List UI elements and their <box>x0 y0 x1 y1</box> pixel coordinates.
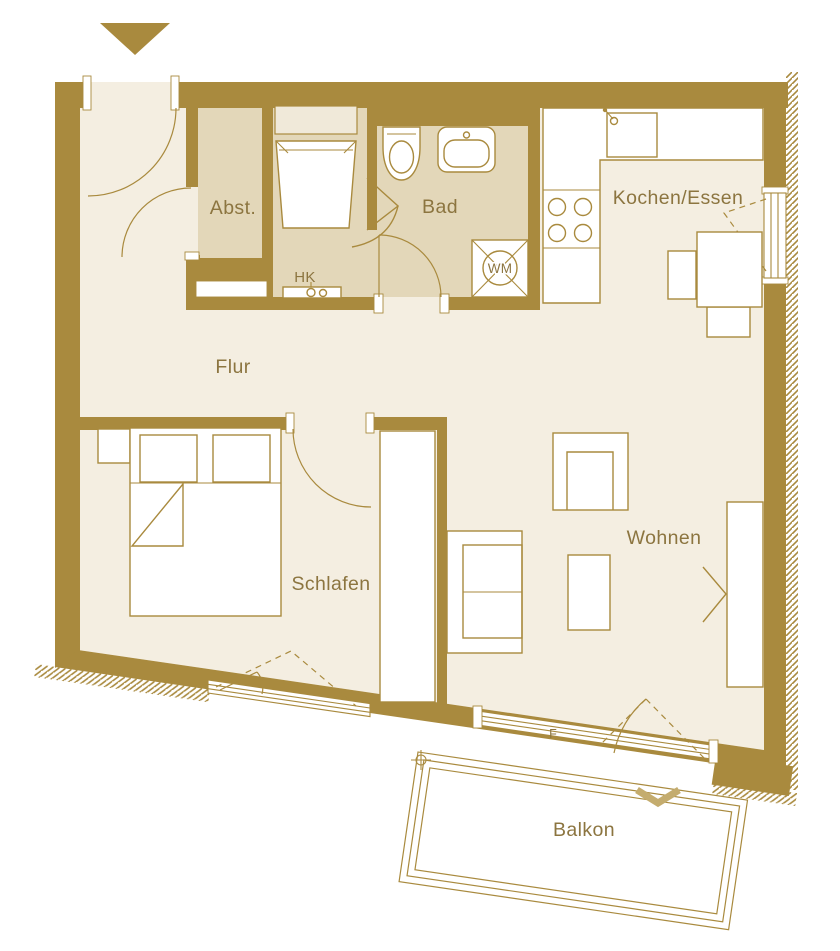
entrance-arrow-icon <box>100 23 170 55</box>
chair-icon <box>707 307 750 337</box>
entrance-threshold <box>90 82 176 108</box>
wall-vestibule-abst-upper <box>186 108 198 187</box>
label-fixed-glazing: F <box>549 727 557 741</box>
floorplan-canvas: Abst. Bad Kochen/Essen Flur Schlafen Woh… <box>0 0 840 951</box>
balcony-strip-jamb-left <box>473 706 482 728</box>
room-label-kochen-essen: Kochen/Essen <box>613 187 744 209</box>
wall-left <box>55 108 80 668</box>
kitchen-window-glazing <box>764 193 786 278</box>
armchair-icon <box>553 433 628 510</box>
wall-bad-kitchen <box>528 108 540 297</box>
room-label-flur: Flur <box>215 356 250 378</box>
duct-niche <box>196 281 267 297</box>
nightstand-icon <box>98 429 130 463</box>
floorplan-drawing: Abst. Bad Kochen/Essen Flur Schlafen Woh… <box>0 0 840 951</box>
hatch-right <box>786 72 798 790</box>
room-label-schlafen: Schlafen <box>291 573 370 595</box>
schlafen-door-jamb-right <box>366 413 374 433</box>
bad-door-opening <box>383 297 440 310</box>
wardrobe-icon <box>380 431 435 702</box>
wall-flur-schlafen-right <box>373 417 447 430</box>
chair-icon <box>668 251 696 299</box>
kitchen-window <box>762 187 788 284</box>
sideboard-icon <box>447 531 522 653</box>
wall-shower-bad <box>367 108 377 230</box>
entrance-door-jamb-right <box>171 76 179 110</box>
label-radiator: HK <box>294 269 315 286</box>
toilet-icon <box>383 127 420 180</box>
wall-abst-bottom <box>198 258 263 282</box>
wall-abst-shower <box>262 108 273 297</box>
room-label-balkon: Balkon <box>553 819 615 841</box>
sink-icon <box>438 127 495 172</box>
room-label-wohnen: Wohnen <box>627 527 702 549</box>
room-label-abst: Abst. <box>210 197 256 219</box>
sofa-icon <box>727 502 763 687</box>
coffee-table-icon <box>568 555 610 630</box>
wall-bad-installation <box>367 108 540 126</box>
dining-table-icon <box>697 232 762 307</box>
wall-top <box>176 82 788 108</box>
bed-icon <box>130 428 281 616</box>
wall-right <box>764 82 786 777</box>
wall-schlafen-wohnen <box>437 430 447 713</box>
entrance-door-jamb-left <box>83 76 91 110</box>
balcony-strip-jamb-right <box>709 740 718 763</box>
room-label-bad: Bad <box>422 196 458 218</box>
wall-hall-band <box>186 297 540 310</box>
shower-icon <box>275 106 357 228</box>
label-washing-machine: WM <box>488 261 513 276</box>
abst-door-jamb <box>185 252 199 260</box>
